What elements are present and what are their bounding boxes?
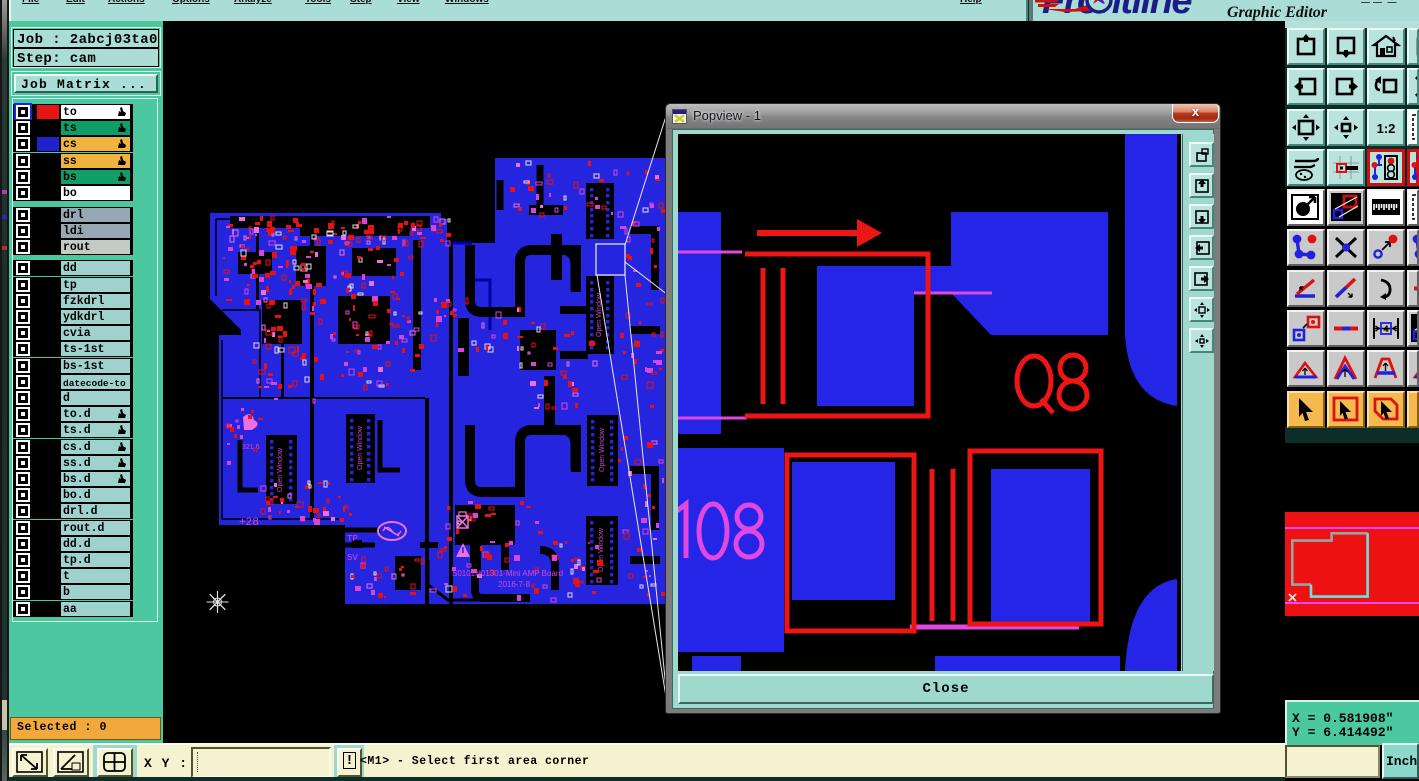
svg-text:Open Window: Open Window: [599, 427, 606, 472]
svg-text:1:2: 1:2: [1377, 121, 1396, 136]
svg-text:TP: TP: [347, 534, 358, 544]
svg-text:4: 4: [1383, 324, 1388, 334]
svg-text:2016-7-8: 2016-7-8: [498, 580, 531, 589]
svg-text:5V: 5V: [347, 553, 358, 563]
svg-text:Open Window: Open Window: [596, 292, 603, 337]
svg-text:Open Window: Open Window: [357, 425, 364, 470]
svg-text:+28: +28: [239, 517, 259, 529]
svg-text:S0101N01301-Mini AMP Board: S0101N01301-Mini AMP Board: [452, 569, 563, 578]
svg-text:Open Window: Open Window: [277, 447, 284, 492]
